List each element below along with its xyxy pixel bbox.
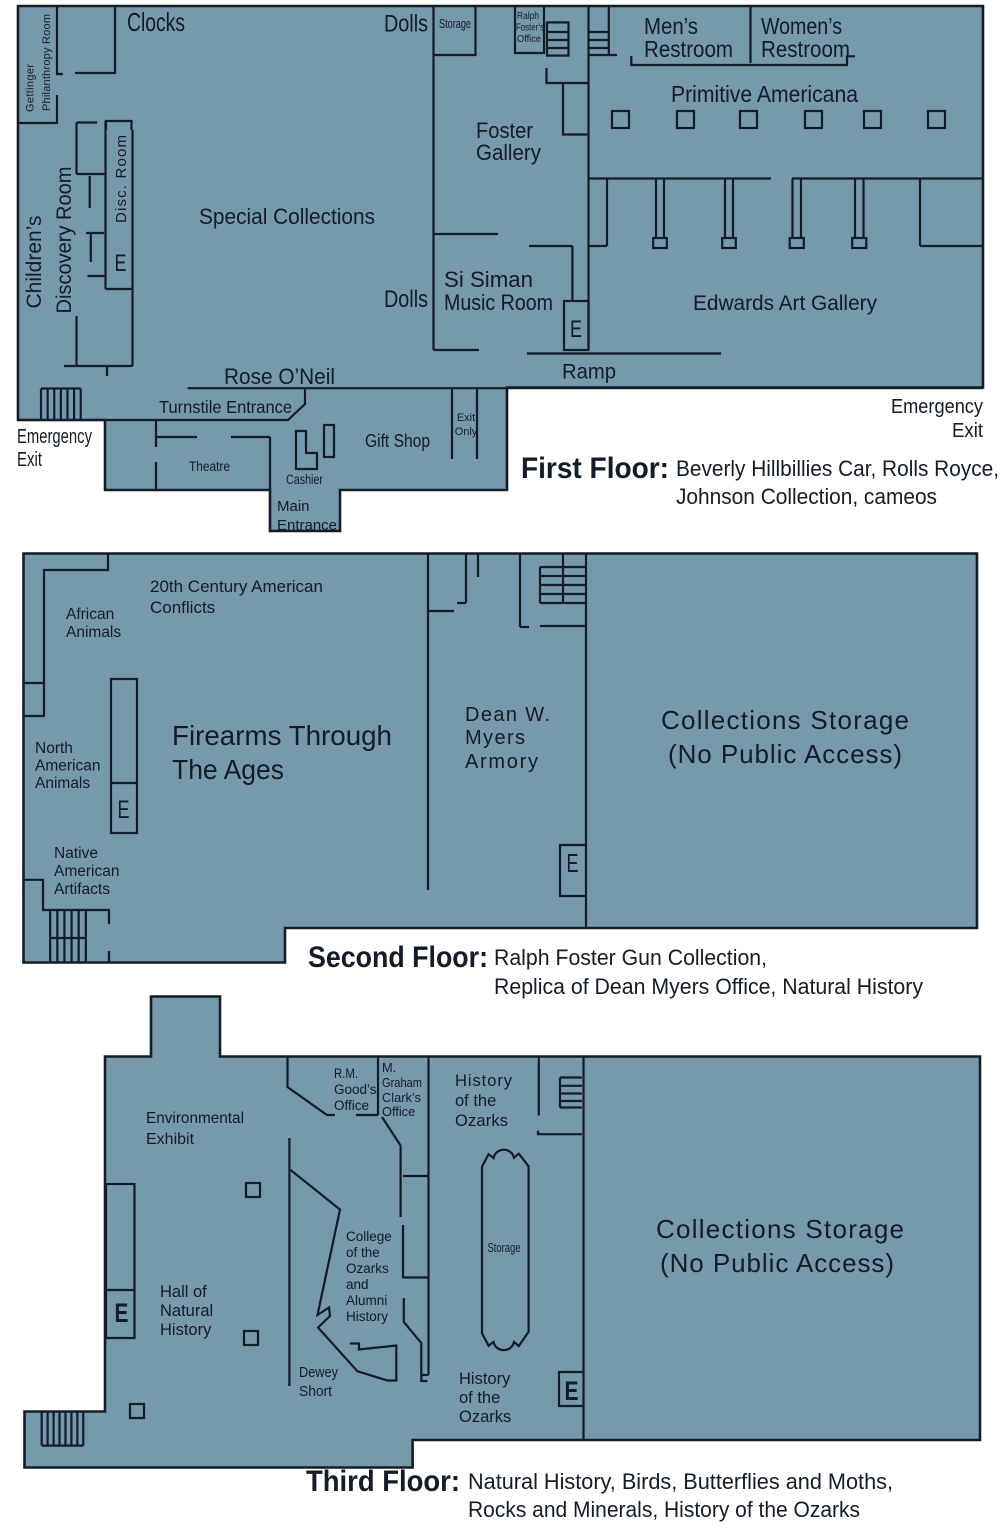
svg-text:E: E [115,1298,129,1328]
svg-text:Environmental: Environmental [146,1110,244,1127]
svg-text:Edwards Art Gallery: Edwards Art Gallery [693,292,877,315]
svg-text:Beverly Hillbillies Car, Rolls: Beverly Hillbillies Car, Rolls Royce, [676,456,999,481]
svg-text:Turnstile Entrance: Turnstile Entrance [159,397,292,417]
svg-text:American: American [35,758,100,775]
svg-text:E: E [567,848,579,878]
svg-text:Hall of: Hall of [160,1283,207,1301]
svg-text:Emergency: Emergency [17,426,92,448]
svg-text:Exit: Exit [952,420,983,442]
svg-text:Dolls: Dolls [384,286,428,313]
svg-text:Primitive Americana: Primitive Americana [671,81,858,107]
svg-text:Philanthropy Room: Philanthropy Room [41,14,53,111]
svg-text:History: History [346,1309,388,1324]
svg-text:Gallery: Gallery [476,140,541,165]
svg-text:Animals: Animals [66,624,121,641]
svg-text:of the: of the [455,1092,496,1110]
svg-text:Replica of Dean Myers Office,: Replica of Dean Myers Office, Natural Hi… [494,974,923,999]
svg-text:E: E [115,250,127,277]
svg-text:Ozarks: Ozarks [459,1408,511,1426]
svg-text:American: American [54,863,119,880]
svg-text:Natural History, Birds, Butter: Natural History, Birds, Butterflies and … [468,1469,893,1494]
svg-text:Ozarks: Ozarks [346,1261,389,1276]
svg-text:Restroom: Restroom [761,36,850,62]
svg-text:Short: Short [299,1383,333,1400]
svg-text:Johnson Collection, cameos: Johnson Collection, cameos [676,484,937,509]
svg-text:E: E [570,316,582,343]
svg-text:Clocks: Clocks [127,7,185,37]
svg-text:Exit: Exit [17,449,42,471]
svg-text:Alumni: Alumni [346,1293,387,1308]
svg-text:Armory: Armory [465,751,538,773]
svg-text:E: E [565,1376,579,1406]
svg-text:Clark’s: Clark’s [382,1090,421,1105]
svg-text:Music Room: Music Room [444,290,553,315]
svg-text:Office: Office [382,1104,415,1119]
svg-text:Theatre: Theatre [189,458,230,474]
svg-text:Natural: Natural [160,1302,213,1320]
svg-text:Third Floor:: Third Floor: [306,1465,460,1498]
svg-text:Only: Only [455,426,478,438]
svg-text:Exhibit: Exhibit [146,1131,195,1148]
svg-text:Entrance: Entrance [277,517,337,534]
svg-text:History: History [459,1370,511,1388]
svg-text:and: and [346,1277,369,1292]
svg-text:Disc. Room: Disc. Room [113,135,130,223]
svg-text:College: College [346,1229,392,1244]
svg-text:Second Floor:: Second Floor: [308,941,488,974]
svg-text:Foster’s: Foster’s [516,23,544,34]
svg-text:Collections Storage: Collections Storage [661,705,909,735]
svg-text:Emergency: Emergency [891,396,983,418]
svg-text:Ozarks: Ozarks [455,1112,508,1130]
svg-text:Cashier: Cashier [286,472,323,487]
svg-text:Storage: Storage [439,17,471,31]
svg-text:Gift Shop: Gift Shop [365,431,430,451]
svg-text:Ramp: Ramp [562,361,616,384]
svg-text:Discovery Room: Discovery Room [53,167,76,314]
svg-text:Office: Office [517,34,541,45]
svg-text:Conflicts: Conflicts [150,598,215,617]
svg-text:Animals: Animals [35,775,90,792]
svg-text:Collections Storage: Collections Storage [656,1214,904,1244]
svg-text:Restroom: Restroom [644,36,733,62]
svg-text:Rocks and Minerals, History of: Rocks and Minerals, History of the Ozark… [468,1497,860,1522]
svg-text:Dean W.: Dean W. [465,704,550,726]
svg-text:Good’s: Good’s [334,1082,377,1097]
svg-text:Firearms Through: Firearms Through [172,720,392,751]
svg-text:First Floor:: First Floor: [521,452,669,485]
svg-text:Storage: Storage [488,1241,521,1255]
svg-text:E: E [118,796,130,824]
svg-text:North: North [35,740,73,757]
svg-text:Children’s: Children’s [23,216,46,309]
svg-text:Myers: Myers [465,727,525,749]
svg-text:Main: Main [277,498,310,515]
svg-text:Special Collections: Special Collections [199,204,375,229]
svg-text:Si Siman: Si Siman [444,267,533,292]
svg-text:of the: of the [459,1389,500,1407]
svg-text:Ralph Foster Gun Collection,: Ralph Foster Gun Collection, [494,945,767,970]
svg-text:Gettinger: Gettinger [25,64,37,112]
svg-text:(No Public Access): (No Public Access) [668,739,902,769]
svg-text:Rose O’Neil: Rose O’Neil [224,364,335,389]
svg-text:Ralph: Ralph [517,11,539,22]
svg-text:(No Public Access): (No Public Access) [660,1248,894,1278]
svg-text:of the: of the [346,1245,380,1260]
svg-text:Graham: Graham [382,1075,422,1090]
svg-text:Office: Office [334,1098,369,1113]
svg-text:Dewey: Dewey [299,1364,338,1381]
svg-text:R.M.: R.M. [334,1066,358,1081]
svg-text:Native: Native [54,845,98,862]
svg-text:Dolls: Dolls [384,11,428,38]
svg-text:History: History [160,1321,212,1339]
svg-text:African: African [66,606,114,623]
svg-text:The Ages: The Ages [172,754,284,785]
svg-text:20th Century American: 20th Century American [150,577,323,596]
svg-text:History: History [455,1072,513,1090]
svg-text:Artifacts: Artifacts [54,881,110,898]
svg-text:M.: M. [382,1060,396,1075]
svg-text:Exit: Exit [457,412,475,424]
